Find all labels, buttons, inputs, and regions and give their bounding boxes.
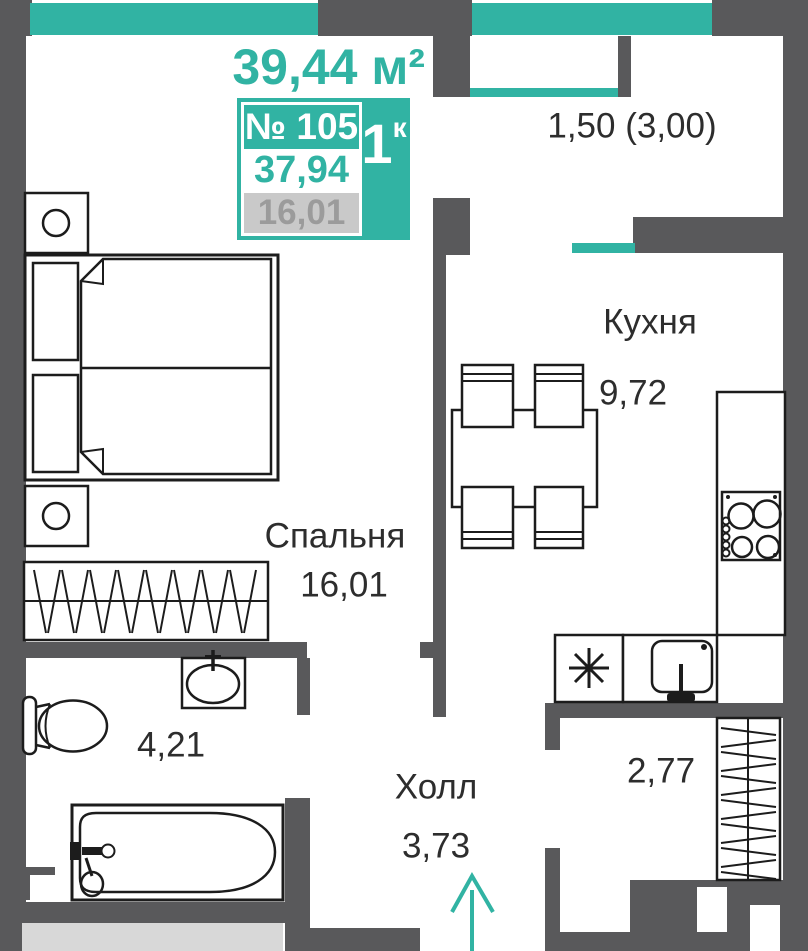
bathtub <box>70 805 283 900</box>
wardrobe <box>24 562 268 640</box>
storage-area-label: 2,77 <box>627 754 695 789</box>
stove <box>722 492 781 560</box>
hall-area-label: 3,73 <box>402 829 470 864</box>
hall-name-label: Холл <box>395 770 478 805</box>
bed <box>25 255 278 480</box>
kitchen-name-label: Кухня <box>603 305 697 340</box>
storage-wardrobe <box>717 718 780 880</box>
chair <box>535 487 583 548</box>
toilet <box>23 697 107 754</box>
bedroom-name-label: Спальня <box>265 519 406 554</box>
bedroom-area-label: 16,01 <box>300 568 388 603</box>
total-area-label: 39,44 м² <box>160 42 425 92</box>
unit-living-area: 16,01 <box>244 193 359 233</box>
balcony-area-label: 1,50 (3,00) <box>547 109 716 144</box>
rooms-count: 1 <box>361 116 392 172</box>
rooms-suffix: к <box>393 114 407 142</box>
kitchen-sink <box>623 635 717 702</box>
nightstand <box>25 486 88 546</box>
unit-total-area: 37,94 <box>244 149 359 193</box>
unit-rooms-badge: 1к <box>362 102 406 236</box>
nightstand <box>25 193 88 253</box>
floor-plan: 39,44 м² № 105 37,94 16,01 1к 1,50 (3,00… <box>0 0 808 951</box>
chair <box>462 487 513 548</box>
chair <box>535 365 583 427</box>
bathroom-area-label: 4,21 <box>137 728 205 763</box>
chair <box>462 365 513 427</box>
unit-card: № 105 37,94 16,01 1к <box>237 98 410 240</box>
entrance-arrow-icon <box>452 876 493 951</box>
kitchen-area-label: 9,72 <box>599 376 667 411</box>
unit-number: № 105 <box>244 105 359 149</box>
fridge-icon <box>555 635 623 702</box>
unit-card-left: № 105 37,94 16,01 <box>241 102 362 236</box>
bathroom-sink <box>182 650 245 708</box>
